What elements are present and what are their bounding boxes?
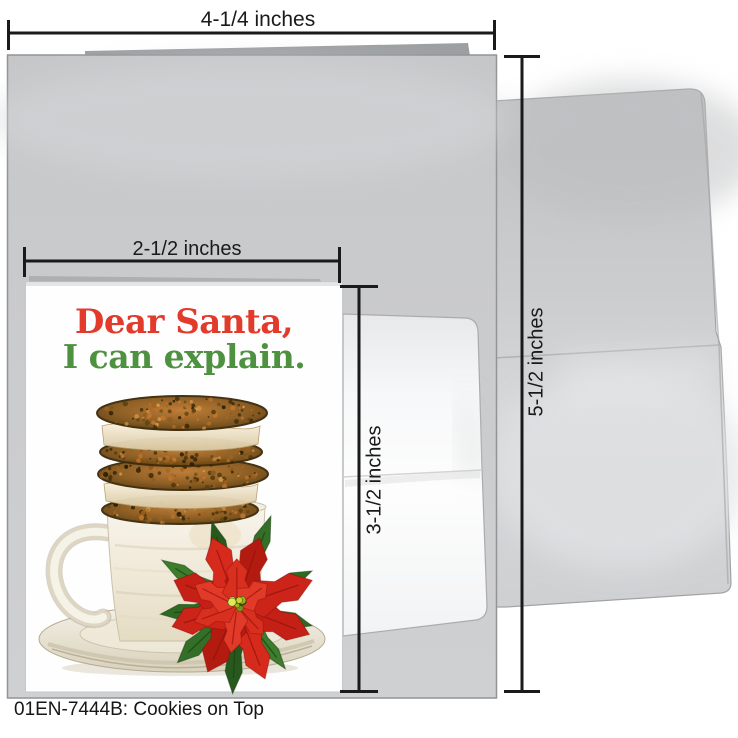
product-caption: 01EN-7444B: Cookies on Top: [14, 699, 264, 721]
card-greeting: Dear Santa, I can explain.: [25, 282, 343, 375]
measurement-label-outer-height: 5-1/2 inches: [526, 308, 549, 417]
product-preview: 4-1/4 inches 2-1/2 inches 3-1/2 inches 5…: [0, 0, 738, 738]
card-greeting-line2: I can explain.: [25, 340, 343, 375]
measurement-label-front-height: 3-1/2 inches: [364, 426, 387, 535]
card-greeting-line1: Dear Santa,: [25, 304, 343, 340]
folded-card-back-edge: [85, 43, 470, 56]
measurement-label-front-width: 2-1/2 inches: [133, 238, 242, 261]
cookie-stack: [97, 396, 268, 525]
measurement-label-outer-width: 4-1/4 inches: [201, 8, 315, 32]
